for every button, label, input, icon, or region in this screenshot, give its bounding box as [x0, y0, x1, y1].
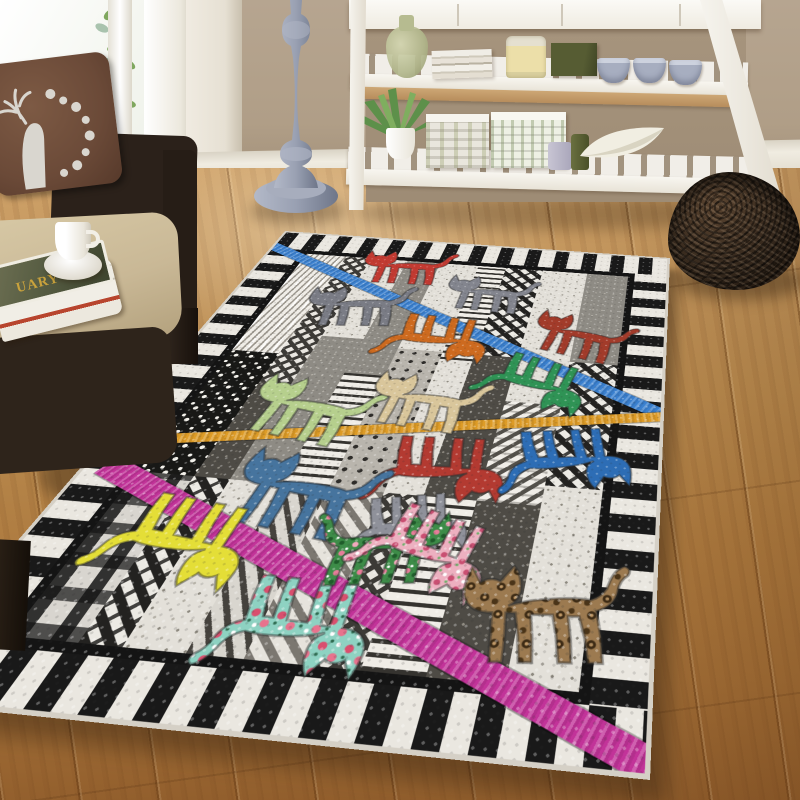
storage-box [426, 114, 489, 168]
pedestal-table [246, 0, 346, 222]
drawer-seam [457, 4, 459, 26]
drawer-seam [561, 4, 563, 26]
rug-cat-blue [498, 427, 634, 494]
shelf-left-leg [349, 0, 366, 210]
drawer-seam [679, 4, 681, 26]
rug-cat-red-flipped [356, 435, 511, 506]
rug-cat-pale-green [226, 371, 390, 452]
small-candle [548, 142, 572, 170]
green-box [551, 43, 597, 76]
leaf-bowl [576, 120, 672, 170]
candle-jar [506, 36, 546, 78]
deer-pillow [0, 51, 124, 198]
book-stack [432, 49, 493, 79]
green-glass-jug-neck [399, 15, 414, 31]
deer-print [0, 51, 124, 198]
plant-pot [386, 128, 415, 159]
living-room-photo: UARY [0, 0, 800, 800]
rug-cat-leopard [452, 564, 632, 664]
rug-cat-slate-gray [295, 286, 419, 326]
armchair-base [0, 326, 179, 474]
rug-cat-gray [437, 274, 542, 316]
rug-cat-red [352, 250, 459, 286]
